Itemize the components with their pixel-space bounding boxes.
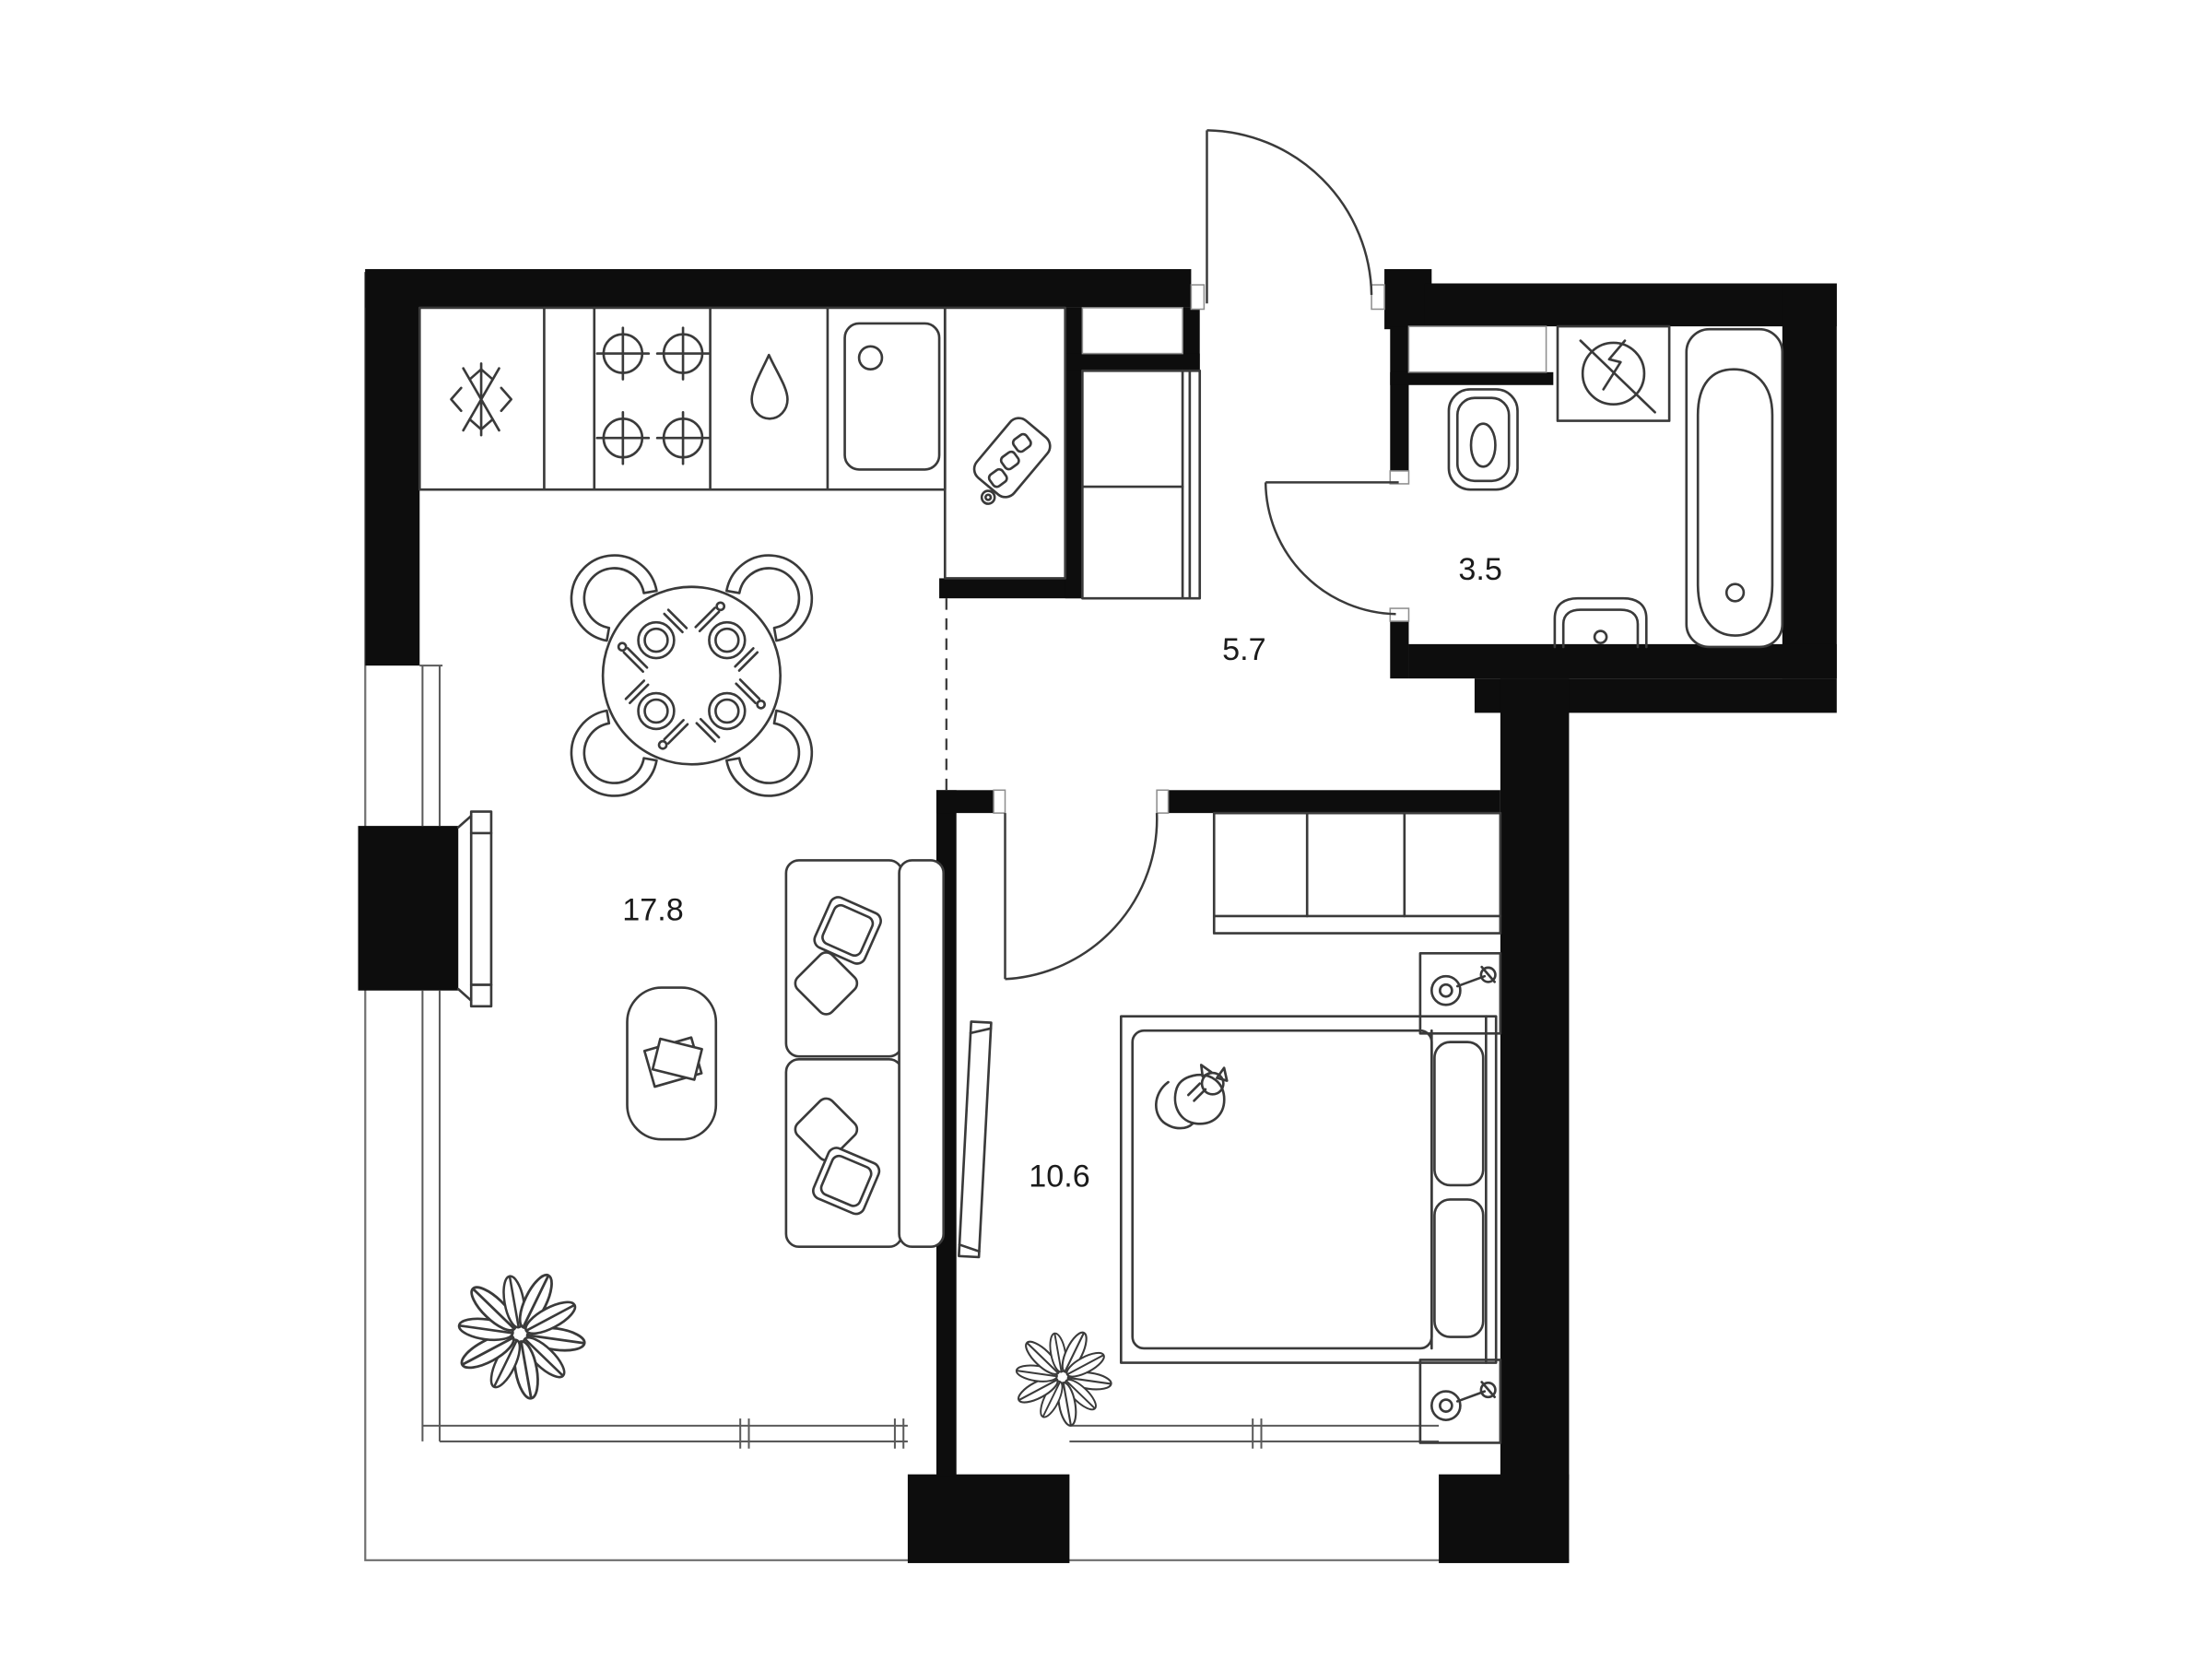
wall-bathroom-left-upper (1390, 326, 1408, 476)
wall-bathroom-left-lower (1390, 616, 1408, 678)
duct-shaft-icon (1082, 308, 1182, 354)
label-living-kitchen-area: 17.8 (622, 893, 683, 928)
label-hallway-area: 5.7 (1222, 632, 1265, 667)
wall-kitchen-column (1065, 308, 1083, 598)
rooms (422, 311, 1779, 1427)
cutting-board-icon (960, 414, 1055, 513)
wall-under-shaft (1065, 354, 1200, 371)
pier-bottom-right (1439, 1475, 1569, 1563)
coffee-table-icon (628, 988, 716, 1140)
room-hallway (1206, 311, 1384, 783)
wall-top (365, 269, 1191, 308)
hall-closet-icon (1082, 371, 1199, 598)
floor-plan-page: 17.8 5.7 3.5 10.6 (0, 0, 2212, 1659)
wall-bedroom-top-right (1159, 790, 1500, 813)
washing-machine-icon (1558, 326, 1669, 421)
pier-bottom-left (908, 1475, 1069, 1563)
label-bedroom-area: 10.6 (1029, 1159, 1089, 1194)
wall-under-bath-niche (1390, 372, 1553, 385)
toilet-icon (1449, 389, 1518, 489)
sofa-icon (786, 860, 944, 1246)
room-bedroom (959, 816, 1496, 1424)
dining-table-icon (603, 587, 781, 765)
pier-balcony (359, 826, 459, 991)
label-bathroom-area: 3.5 (1458, 552, 1501, 587)
wall-bathroom-bottom (1408, 644, 1836, 678)
entrance-door-icon (1191, 130, 1384, 309)
wall-bedroom-top-left (936, 790, 1002, 813)
wall-bathroom-top (1425, 284, 1837, 327)
floor-plan: 17.8 5.7 3.5 10.6 (0, 0, 2212, 1659)
wall-right (1500, 678, 1570, 1480)
wall-left (365, 269, 419, 665)
wall-kitchen-bottom (939, 578, 1082, 598)
bathtub-icon (1687, 329, 1783, 647)
wall-bathroom-right (1783, 284, 1837, 679)
bathroom-niche (1408, 326, 1546, 372)
